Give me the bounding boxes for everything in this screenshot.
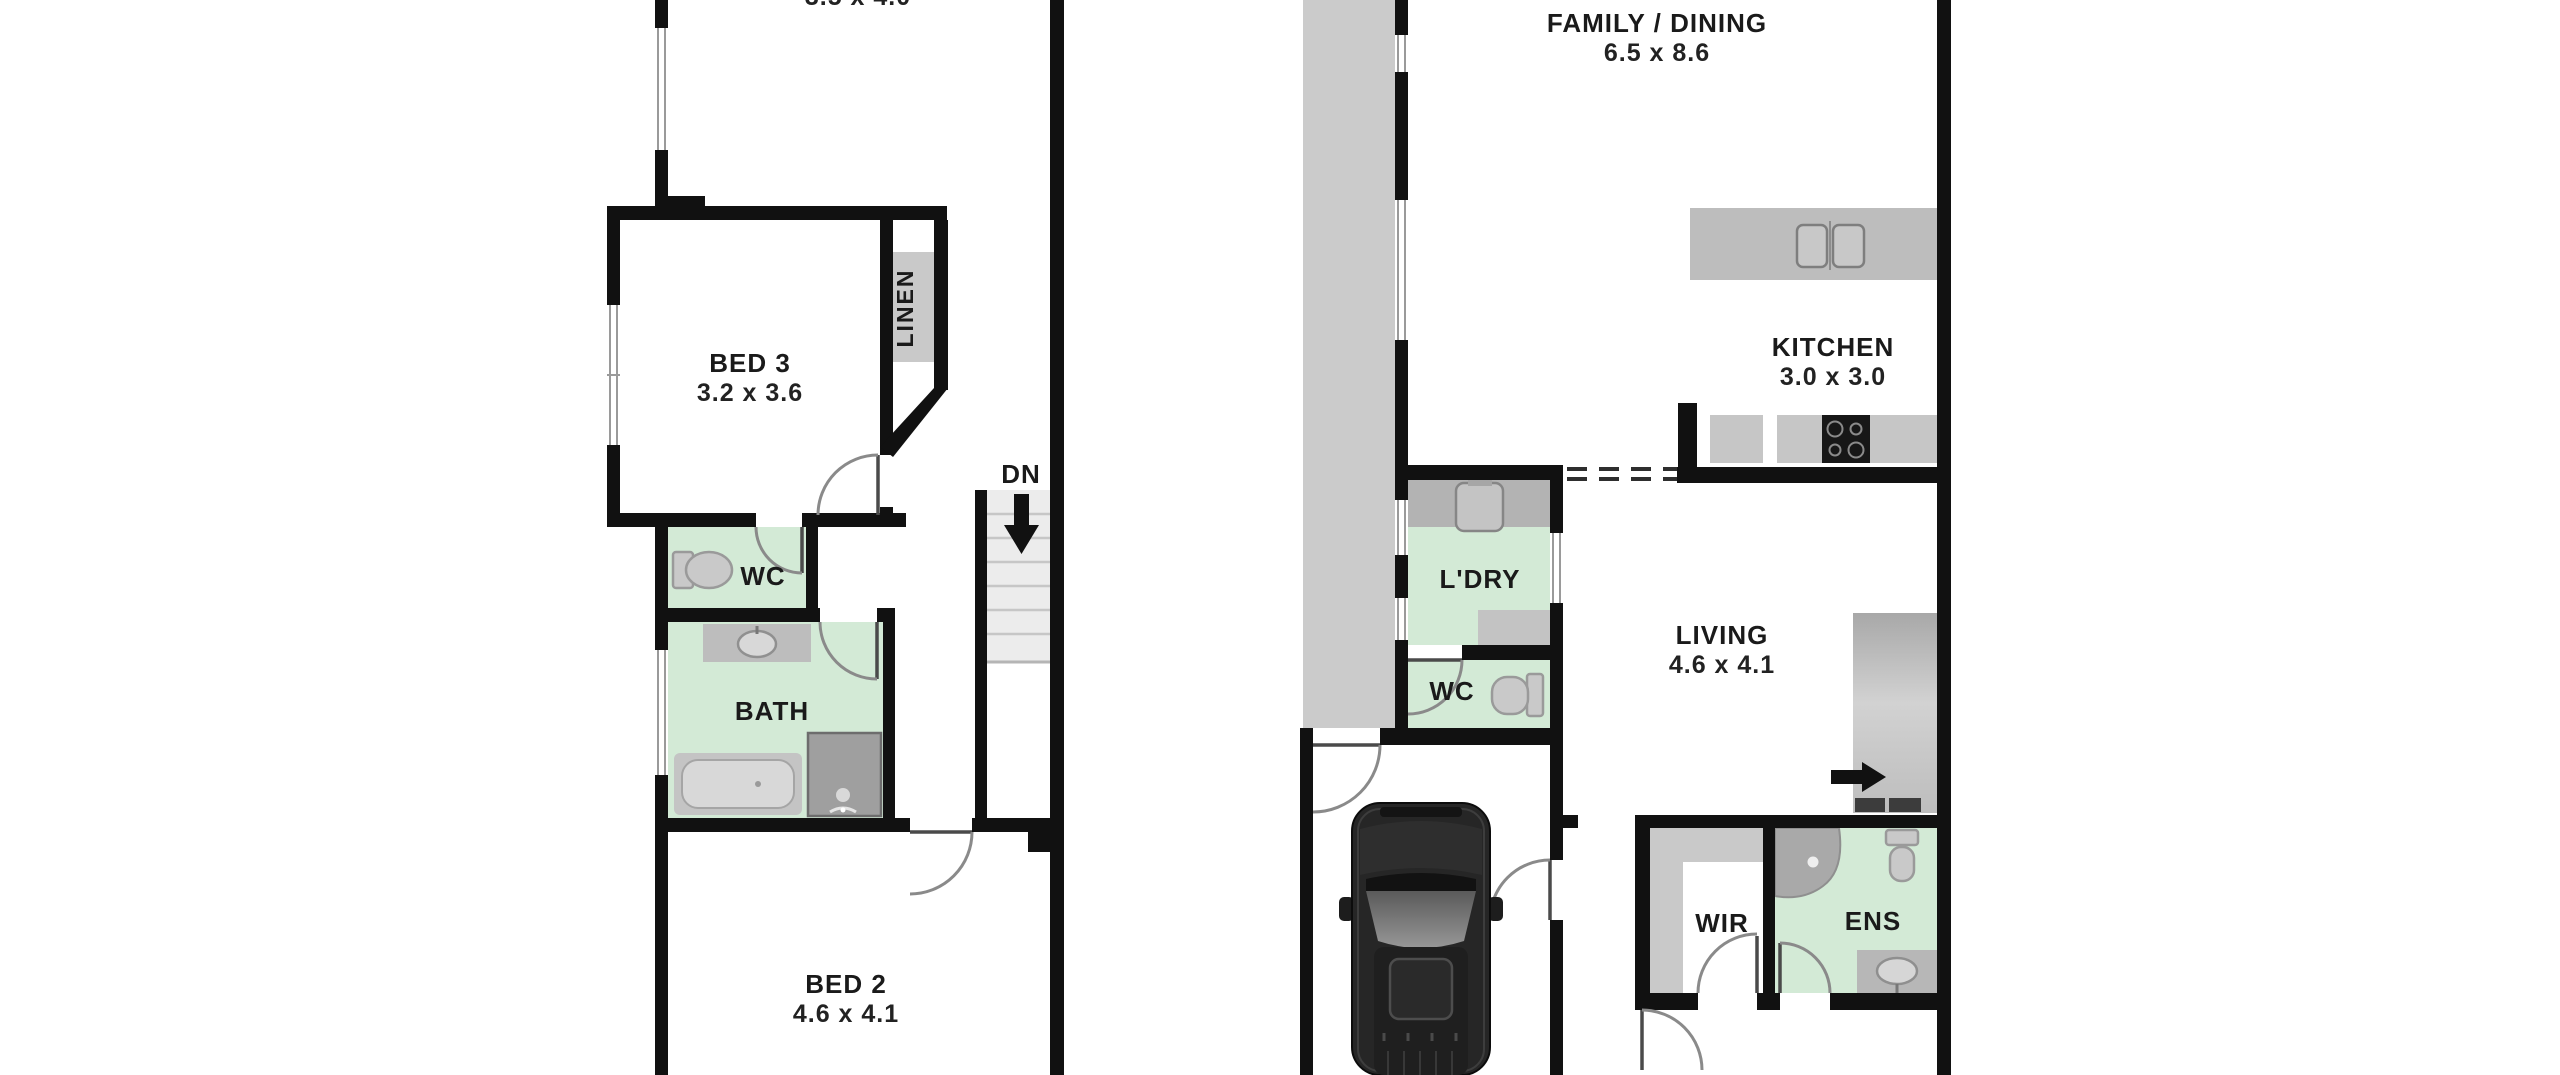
ens-label: ENS xyxy=(1845,906,1901,936)
linen-label: LINEN xyxy=(892,269,918,348)
stairs-dn-label: DN xyxy=(1001,459,1041,489)
family-dining-dims: 6.5 x 8.6 xyxy=(1604,39,1710,67)
kitchen-island xyxy=(1690,208,1937,280)
cooktop-icon xyxy=(1822,415,1870,463)
living-label: LIVING xyxy=(1676,620,1769,650)
wc-left-label: WC xyxy=(740,561,785,591)
bath-label: BATH xyxy=(735,696,809,726)
side-path xyxy=(1303,0,1395,728)
ens-toilet-icon xyxy=(1886,830,1918,881)
family-dining-label: FAMILY / DINING xyxy=(1547,8,1767,38)
left-plan: 3.5 x 4.0 BED 3 3.2 x 3.6 LINEN DN WC BA… xyxy=(607,0,1064,1075)
laundry-label: L'DRY xyxy=(1440,564,1521,594)
staircase xyxy=(987,490,1050,662)
wc-right-toilet-icon xyxy=(1492,674,1543,716)
bed3-dims: 3.2 x 3.6 xyxy=(697,379,803,407)
washing-machine-icon xyxy=(1456,480,1503,531)
car xyxy=(1339,803,1503,1075)
door-garage xyxy=(1313,745,1380,812)
floor-plan-page: 3.5 x 4.0 BED 3 3.2 x 3.6 LINEN DN WC BA… xyxy=(0,0,2560,1075)
window xyxy=(607,305,620,445)
window xyxy=(655,650,668,775)
window xyxy=(1395,598,1408,640)
bed3-label: BED 3 xyxy=(709,348,791,378)
right-plan: FAMILY / DINING 6.5 x 8.6 KITCHEN 3.0 x … xyxy=(1300,0,1951,1075)
door-wir xyxy=(1698,934,1757,993)
upper-room-dims: 3.5 x 4.0 xyxy=(805,0,911,11)
vanity-icon xyxy=(703,624,811,662)
toilet-icon xyxy=(673,552,732,588)
kitchen-sink-icon xyxy=(1797,221,1864,270)
left-plan-windows xyxy=(607,28,668,775)
kitchen-dims: 3.0 x 3.0 xyxy=(1780,363,1886,391)
window xyxy=(1395,35,1408,72)
laundry-counter xyxy=(1478,610,1550,645)
sliding-door xyxy=(1550,533,1563,603)
ens-vanity-icon xyxy=(1857,950,1937,993)
window xyxy=(1395,500,1408,555)
window xyxy=(655,28,668,150)
bed2-label: BED 2 xyxy=(805,969,887,999)
door-bed3 xyxy=(818,455,878,515)
bathtub-icon xyxy=(674,753,802,815)
living-dims: 4.6 x 4.1 xyxy=(1669,651,1775,679)
kitchen-label: KITCHEN xyxy=(1772,332,1895,362)
window xyxy=(1395,200,1408,340)
shower-icon xyxy=(808,733,881,816)
door-bed2 xyxy=(910,832,972,894)
wc-right-label: WC xyxy=(1429,676,1474,706)
wir-label: WIR xyxy=(1695,908,1749,938)
bed2-dims: 4.6 x 4.1 xyxy=(793,1000,899,1028)
kitchen-bench xyxy=(1710,415,1763,463)
open-plan-dashed-opening xyxy=(1567,469,1677,479)
laundry-bench xyxy=(1408,480,1550,531)
door-hall-bottom xyxy=(1642,1010,1702,1070)
floor-plan: 3.5 x 4.0 BED 3 3.2 x 3.6 LINEN DN WC BA… xyxy=(0,0,2560,1075)
